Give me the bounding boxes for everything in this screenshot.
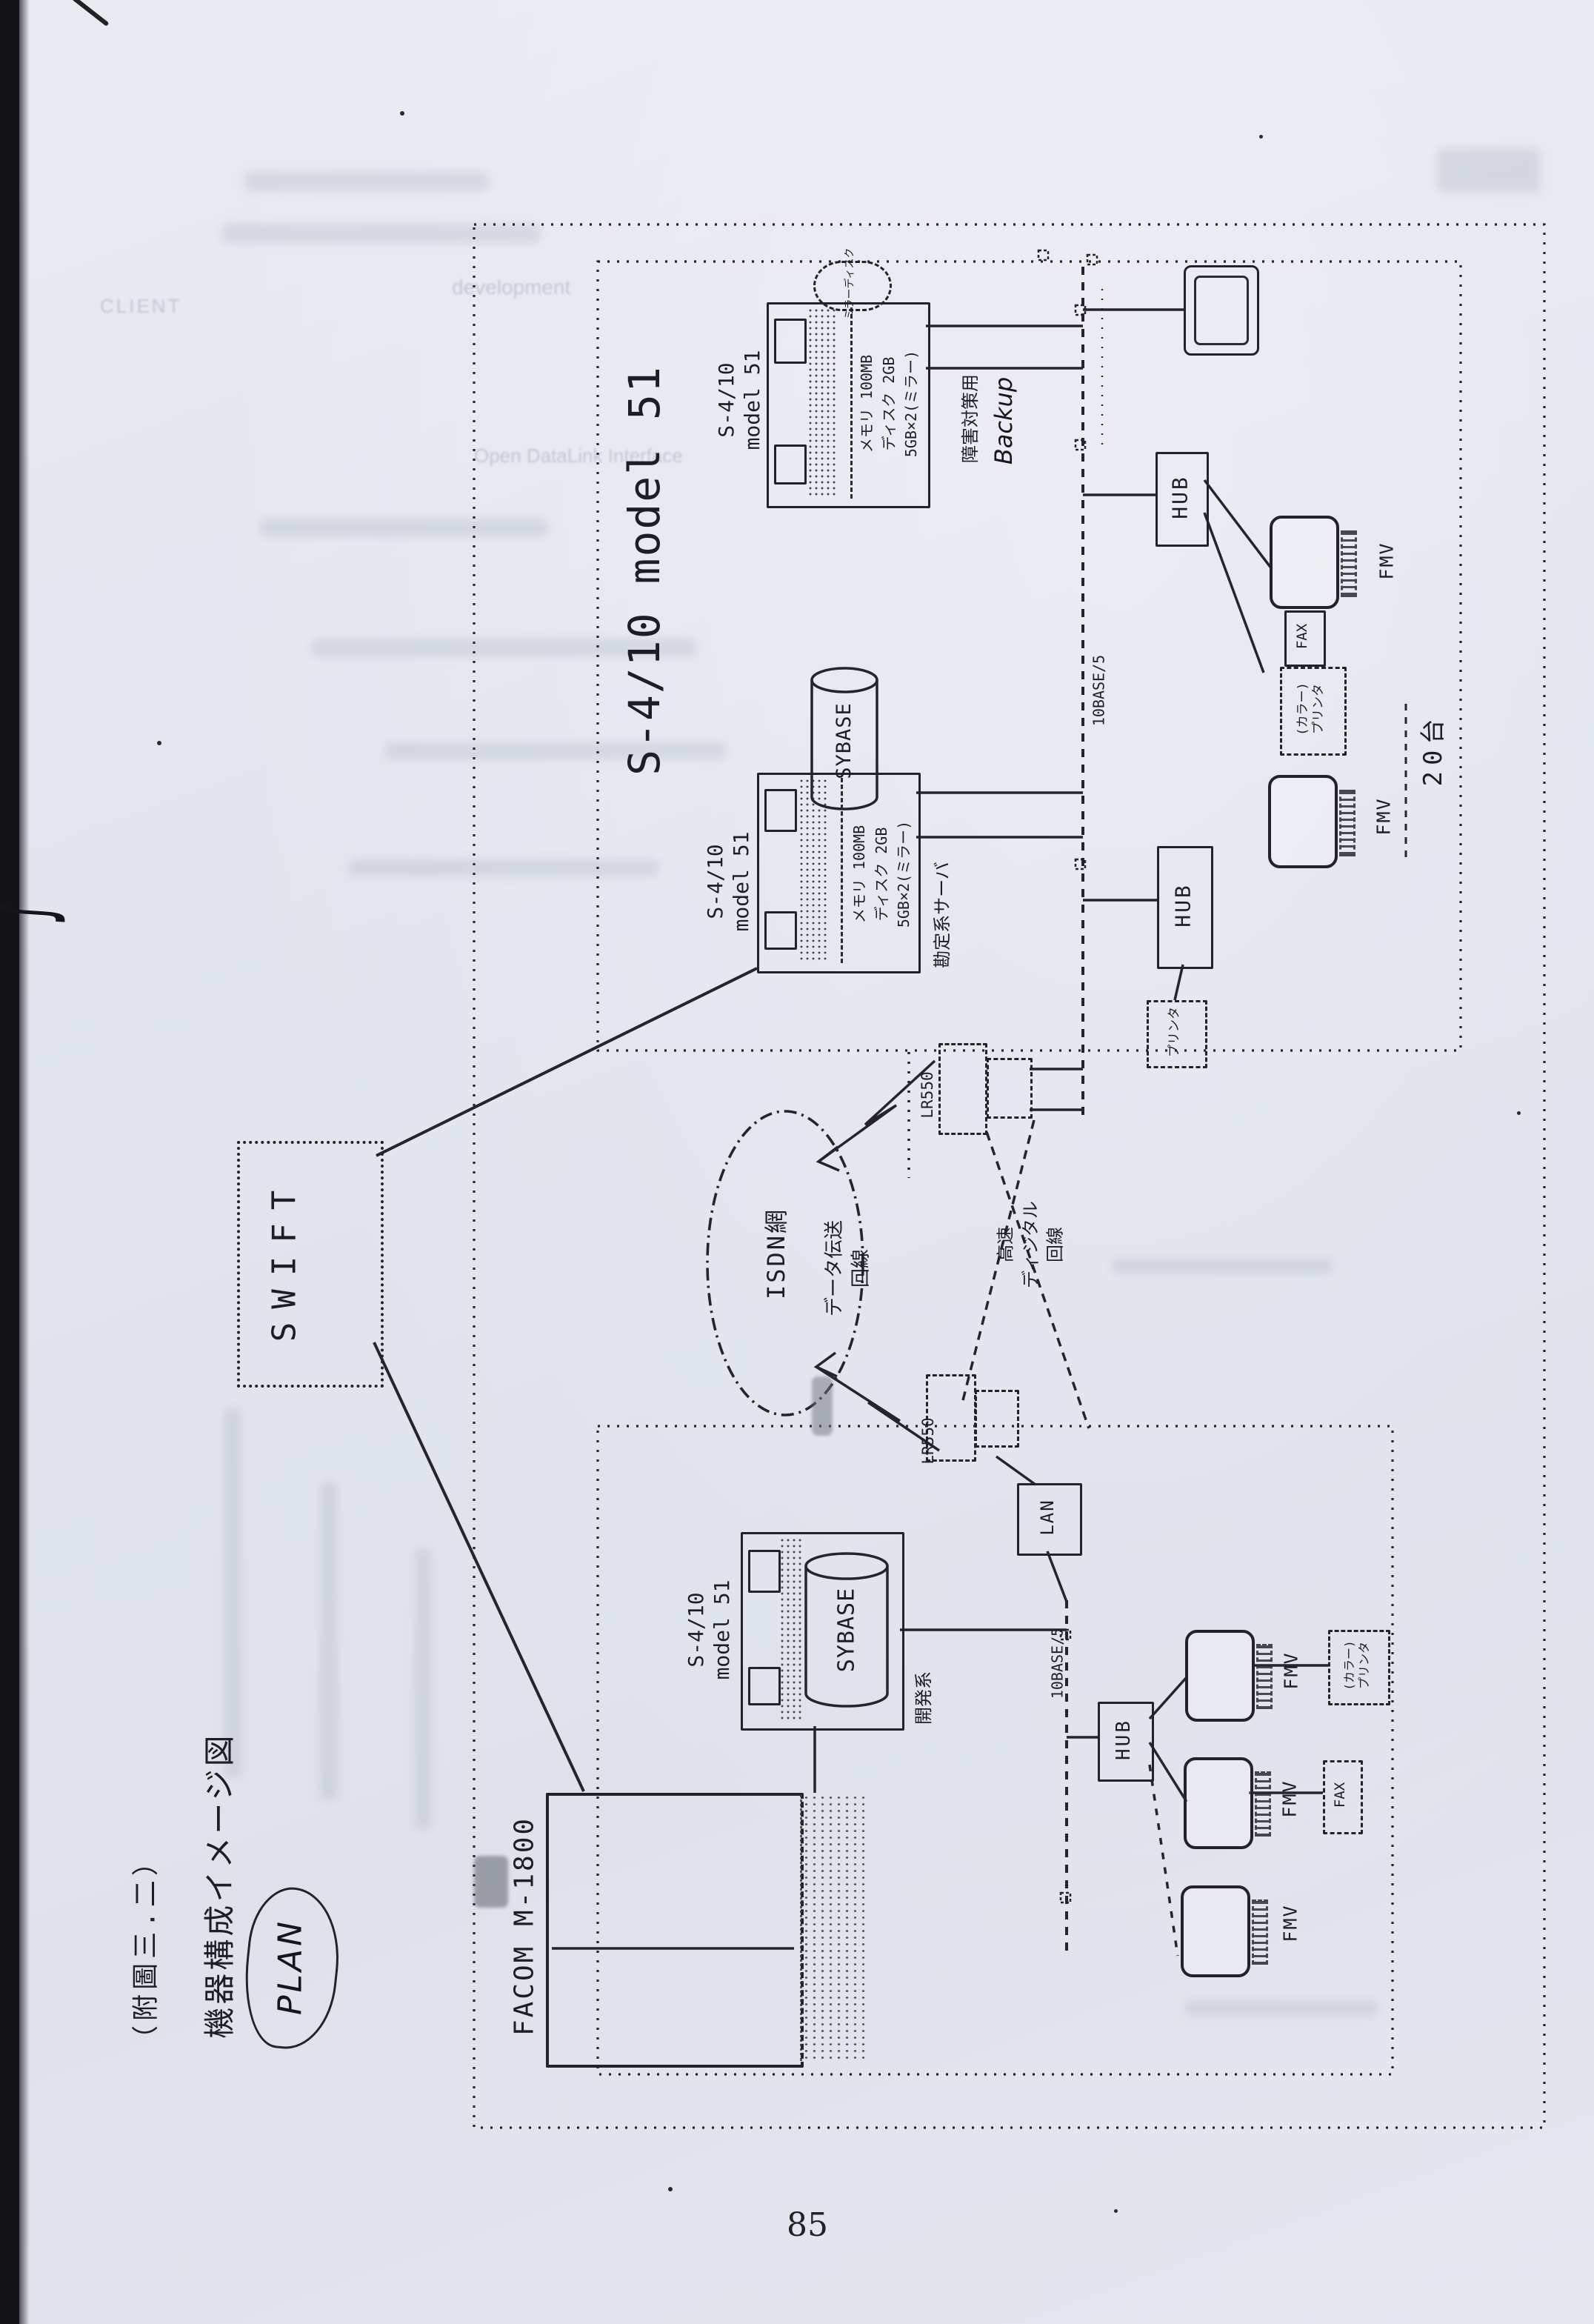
cluster-heading: S-4/10 model 51	[618, 365, 672, 776]
fmv-label: FMV	[1372, 797, 1395, 835]
printer-lower-label: (カラー) プリンタ	[1342, 1640, 1372, 1690]
server-backup-label: S-4/10 model 51	[713, 350, 765, 450]
lr550-lower-label: LR550	[918, 1417, 938, 1464]
line-label-line: ディジタル	[1018, 1201, 1044, 1288]
server-online-label: S-4/10 model 51	[702, 832, 754, 932]
sybase-label: SYBASE	[832, 702, 857, 779]
plan-note: PLAN	[270, 1919, 311, 2015]
keyboard	[1255, 1771, 1271, 1837]
hub-lower-label: HUB	[1112, 1719, 1136, 1760]
server-online-role: 勘定系サーバ	[931, 862, 953, 968]
printer-label: (カラー) プリンタ	[1295, 682, 1327, 735]
sybase-label: SYBASE	[833, 1588, 861, 1672]
spec-line: ディスク 2GB	[870, 821, 893, 928]
server-cpu-notch	[764, 789, 797, 832]
server-label-line: model 51	[739, 350, 765, 450]
lr550l-lan-link	[996, 1456, 1036, 1485]
hub2-printer-link	[1175, 965, 1183, 1000]
lr550-upper-box2	[987, 1058, 1033, 1119]
server-disk-band	[798, 778, 827, 963]
server-backup-role-jp: 障害対策用	[959, 374, 981, 463]
server-divider	[850, 307, 853, 499]
hub2-label: HUB	[1170, 883, 1196, 928]
server-label-line: S-4/10	[683, 1580, 709, 1680]
handwriting-smudge	[474, 1856, 508, 1908]
server-backup-role-en: Backup	[989, 377, 1018, 465]
server-cpu-notch	[774, 445, 807, 485]
line-label-line: データ伝送	[821, 1220, 848, 1316]
hub1-printer-link	[1204, 513, 1264, 673]
keyboard	[1341, 530, 1357, 597]
lan-bus-link	[1047, 1551, 1067, 1602]
printer-label-line: (カラー)	[1295, 682, 1311, 735]
monitor-fmv	[1270, 516, 1339, 609]
monitor-fmv	[1181, 1885, 1250, 1977]
line-label-line: 高速	[994, 1201, 1019, 1288]
fmv-label: FMV	[1278, 1904, 1301, 1942]
server-develop-label: S-4/10 model 51	[683, 1580, 735, 1680]
spec-line: ディスク 2GB	[878, 350, 900, 457]
client-count-label: 20台	[1418, 713, 1450, 787]
printer-label-line: (カラー)	[1342, 1640, 1357, 1690]
pc-screen	[1194, 276, 1249, 345]
printer2-label: プリンタ	[1167, 1007, 1182, 1057]
bus-lower-label: 10BASE/5	[1049, 1628, 1067, 1699]
swift-box	[237, 1141, 384, 1388]
mainframe-label: FACOM M-1800	[508, 1817, 541, 2036]
keyboard	[1256, 1644, 1273, 1709]
lr550-lower-box2	[975, 1390, 1019, 1448]
server-label-line: S-4/10	[702, 832, 728, 932]
server-cpu-notch	[748, 1667, 781, 1705]
line-label-digital: 高速 ディジタル 回線	[994, 1201, 1069, 1288]
lr550-upper-box	[938, 1043, 987, 1135]
lr550-upper-label: LR550	[918, 1071, 937, 1118]
isdn-zigzag-arrowhead	[816, 1353, 837, 1376]
server-cpu-notch	[748, 1550, 781, 1593]
isdn-label: ISDN網	[761, 1208, 791, 1299]
hub-monitor-link	[1150, 1677, 1187, 1719]
server-develop-role: 開発系	[913, 1671, 935, 1725]
figure-title: 機器構成イメージ図	[201, 1732, 240, 2038]
monitor-fmv	[1184, 1757, 1253, 1849]
bus-upper-label: 10BASE/5	[1090, 655, 1109, 726]
server-backup-specs: メモリ 100MB ディスク 2GB 5GB×2(ミラー)	[856, 350, 922, 457]
pc-icon	[1184, 265, 1259, 356]
printer-label-line: プリンタ	[1311, 682, 1327, 735]
line-label-denso: データ伝送 回線	[821, 1220, 876, 1316]
server-online-specs: メモリ 100MB ディスク 2GB 5GB×2(ミラー)	[848, 821, 915, 928]
illegible-annotation	[812, 1376, 833, 1436]
scanned-page: CLIENT development Open DataLink Interfa…	[0, 0, 1594, 2324]
fax-lower-label: FAX	[1332, 1782, 1350, 1808]
spec-line: 5GB×2(ミラー)	[893, 821, 915, 928]
figure-number-title: （附圖三.二）	[130, 1845, 163, 2052]
spec-line: 5GB×2(ミラー)	[900, 350, 922, 457]
hub-monitor-link-dashed	[1150, 1765, 1178, 1956]
server-label-line: model 51	[709, 1580, 735, 1680]
monitor-fmv	[1268, 775, 1338, 868]
keyboard	[1252, 1900, 1268, 1965]
server2-swift-link	[376, 968, 757, 1156]
mainframe-box	[546, 1793, 804, 2068]
server-divider	[841, 778, 843, 963]
mirror-disk-label: ミラーディスク	[844, 247, 857, 319]
page-number: 85	[787, 2206, 828, 2244]
fmv-label: FMV	[1278, 1779, 1301, 1817]
spec-line: メモリ 100MB	[856, 350, 878, 457]
lan-label: LAN	[1036, 1499, 1058, 1535]
server-disk-band	[779, 1537, 804, 1721]
server-cpu-notch	[774, 319, 807, 364]
server-cpu-notch	[764, 911, 797, 950]
hub1-label: HUB	[1167, 475, 1193, 519]
monitor-fmv	[1185, 1630, 1255, 1722]
server-label-line: S-4/10	[713, 350, 739, 450]
fmv-label: FMV	[1375, 542, 1398, 579]
swift-label: SWIFT	[264, 1177, 305, 1342]
hub-monitor-link	[1150, 1742, 1187, 1802]
mainframe-channel-hatch	[800, 1794, 867, 2061]
fmv-label: FMV	[1279, 1651, 1302, 1689]
server-label-line: model 51	[728, 832, 754, 932]
hub1-monitor-link	[1204, 480, 1272, 569]
printer-label-line: プリンタ	[1357, 1640, 1372, 1690]
server-disk-band	[807, 307, 836, 499]
swift-mainframe-link	[374, 1342, 584, 1791]
line-label-line: 回線	[1044, 1201, 1069, 1288]
fax-label: FAX	[1294, 624, 1312, 649]
spec-line: メモリ 100MB	[848, 821, 870, 928]
line-label-line: 回線	[848, 1220, 875, 1316]
keyboard	[1339, 790, 1355, 856]
